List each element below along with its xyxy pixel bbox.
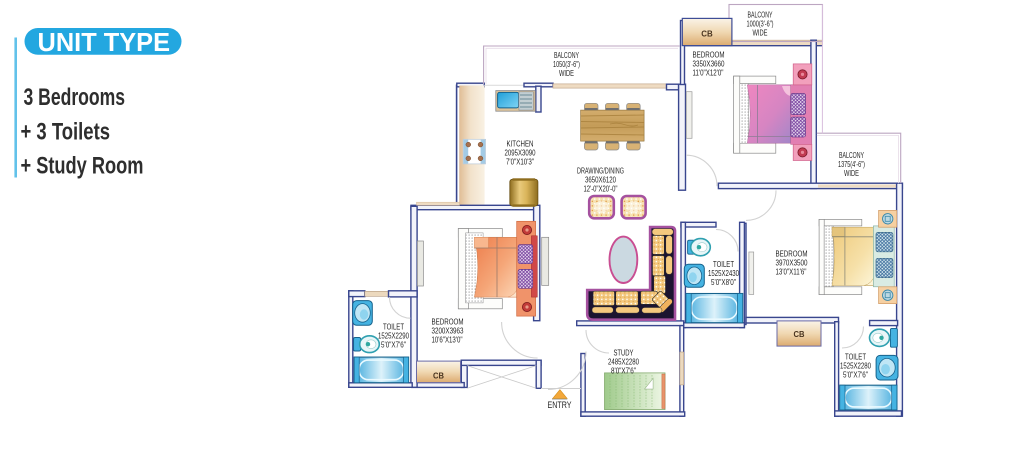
svg-text:BEDROOM: BEDROOM [776, 250, 808, 259]
svg-text:UNIT TYPE: UNIT TYPE [38, 27, 171, 57]
svg-text:1000(3'-6"): 1000(3'-6") [747, 20, 774, 29]
svg-text:5'0"X8'0": 5'0"X8'0" [711, 278, 736, 287]
svg-text:11'0"X12'0": 11'0"X12'0" [693, 69, 724, 78]
svg-text:BEDROOM: BEDROOM [432, 318, 464, 327]
svg-text:CB: CB [701, 29, 713, 39]
svg-text:12'-0"X20'-0": 12'-0"X20'-0" [584, 185, 618, 194]
svg-text:1525X2430: 1525X2430 [708, 269, 739, 278]
svg-text:WIDE: WIDE [844, 169, 859, 178]
svg-text:10'6"X13'0": 10'6"X13'0" [432, 336, 463, 345]
svg-text:TOILET: TOILET [845, 353, 866, 362]
svg-text:3350X3660: 3350X3660 [693, 60, 725, 69]
svg-text:2095X3090: 2095X3090 [505, 149, 536, 158]
svg-text:8'0"X7'6": 8'0"X7'6" [611, 367, 636, 376]
svg-text:2485X2280: 2485X2280 [608, 358, 639, 367]
svg-text:TOILET: TOILET [383, 323, 404, 332]
svg-text:3200X3963: 3200X3963 [432, 327, 464, 336]
svg-text:1525X2290: 1525X2290 [378, 332, 409, 341]
svg-text:3650X6120: 3650X6120 [585, 176, 616, 185]
svg-text:1525X2280: 1525X2280 [840, 362, 871, 371]
svg-text:DRAWING/DINING: DRAWING/DINING [577, 167, 624, 176]
svg-text:+ 3 Toilets: + 3 Toilets [21, 119, 111, 146]
svg-text:3970X3500: 3970X3500 [776, 259, 808, 268]
svg-text:1050(3'-6"): 1050(3'-6") [553, 60, 580, 69]
svg-text:7'0"X10'3": 7'0"X10'3" [506, 158, 534, 167]
svg-text:WIDE: WIDE [559, 69, 574, 78]
svg-text:CB: CB [433, 372, 444, 381]
svg-text:BALCONY: BALCONY [554, 51, 579, 60]
svg-text:BALCONY: BALCONY [748, 11, 773, 20]
svg-text:ENTRY: ENTRY [548, 400, 572, 410]
svg-text:13'0"X11'6": 13'0"X11'6" [776, 268, 807, 277]
svg-text:1375(4'-6"): 1375(4'-6") [838, 160, 865, 169]
svg-text:BEDROOM: BEDROOM [693, 51, 725, 60]
svg-text:BALCONY: BALCONY [839, 151, 864, 160]
svg-text:3 Bedrooms: 3 Bedrooms [24, 84, 126, 111]
svg-text:5'0"X7'6": 5'0"X7'6" [381, 341, 406, 350]
svg-text:STUDY: STUDY [614, 349, 634, 358]
svg-text:+ Study Room: + Study Room [21, 153, 144, 180]
svg-text:TOILET: TOILET [713, 260, 734, 269]
svg-text:5'0"X7'6": 5'0"X7'6" [843, 371, 868, 380]
svg-text:KITCHEN: KITCHEN [507, 140, 534, 149]
svg-text:CB: CB [794, 330, 805, 339]
svg-text:WIDE: WIDE [753, 29, 768, 38]
